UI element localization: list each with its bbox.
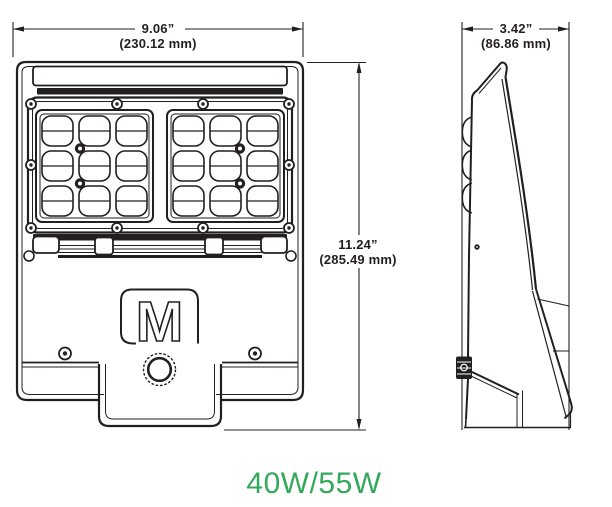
hinge-clip xyxy=(95,238,113,255)
side-base xyxy=(464,391,571,428)
arrowhead xyxy=(292,26,303,31)
height-dimension-label: 11.24” (285.49 mm) xyxy=(312,237,404,267)
brand-logo: M xyxy=(121,290,198,355)
front-view: M xyxy=(17,62,303,426)
hinge-pin xyxy=(24,251,34,261)
led-module-right xyxy=(167,110,284,222)
mount-tab-outline xyxy=(99,364,221,426)
mount-tab-inner xyxy=(106,364,215,419)
side-back-curve xyxy=(506,77,537,289)
door-screw xyxy=(249,348,261,360)
depth-mm: (86.86 mm) xyxy=(455,36,577,51)
side-fin xyxy=(536,289,572,419)
door-panel: M xyxy=(22,290,298,427)
door-screw xyxy=(59,348,71,360)
side-strut-inner xyxy=(470,376,517,399)
hinge-rail-thick xyxy=(58,255,262,258)
hinge-end-cap xyxy=(33,237,59,254)
hinge-band xyxy=(24,234,296,261)
side-knob xyxy=(456,357,472,380)
hinge-rails xyxy=(58,246,262,253)
height-mm: (285.49 mm) xyxy=(312,252,404,267)
hinge-pin xyxy=(286,251,296,261)
arrowhead xyxy=(357,62,362,73)
side-top-edge-inner xyxy=(479,68,501,94)
lens-bezel xyxy=(28,98,292,233)
height-inches: 11.24” xyxy=(312,237,404,252)
arrowhead xyxy=(357,419,362,430)
side-view xyxy=(456,62,572,427)
gasket-strip xyxy=(37,88,283,95)
depth-inches: 3.42” xyxy=(455,21,577,36)
width-inches: 9.06” xyxy=(98,21,218,36)
side-fin-inner xyxy=(533,291,567,417)
line-art: M xyxy=(0,0,612,507)
width-mm: (230.12 mm) xyxy=(98,36,218,51)
led-module-left xyxy=(36,110,153,222)
module-screw xyxy=(75,143,85,153)
arrowhead xyxy=(13,26,24,31)
side-strut xyxy=(471,372,519,395)
lens-bezel-inner xyxy=(33,102,288,229)
hinge-clip xyxy=(205,238,223,255)
hinge-end-cap xyxy=(261,237,287,254)
depth-dimension-label: 3.42” (86.86 mm) xyxy=(455,21,577,51)
width-dimension-label: 9.06” (230.12 mm) xyxy=(98,21,218,51)
module-screw xyxy=(235,143,245,153)
top-visor xyxy=(33,67,287,86)
logo-letter: M xyxy=(136,290,183,354)
module-screw xyxy=(75,178,85,188)
knockout xyxy=(144,354,176,386)
module-screw xyxy=(235,178,245,188)
gasket-band xyxy=(33,234,287,241)
side-back-curve-inner xyxy=(502,79,533,290)
dimension-drawing: M 9.06” xyxy=(0,0,612,507)
wattage-label: 40W/55W xyxy=(234,467,394,501)
